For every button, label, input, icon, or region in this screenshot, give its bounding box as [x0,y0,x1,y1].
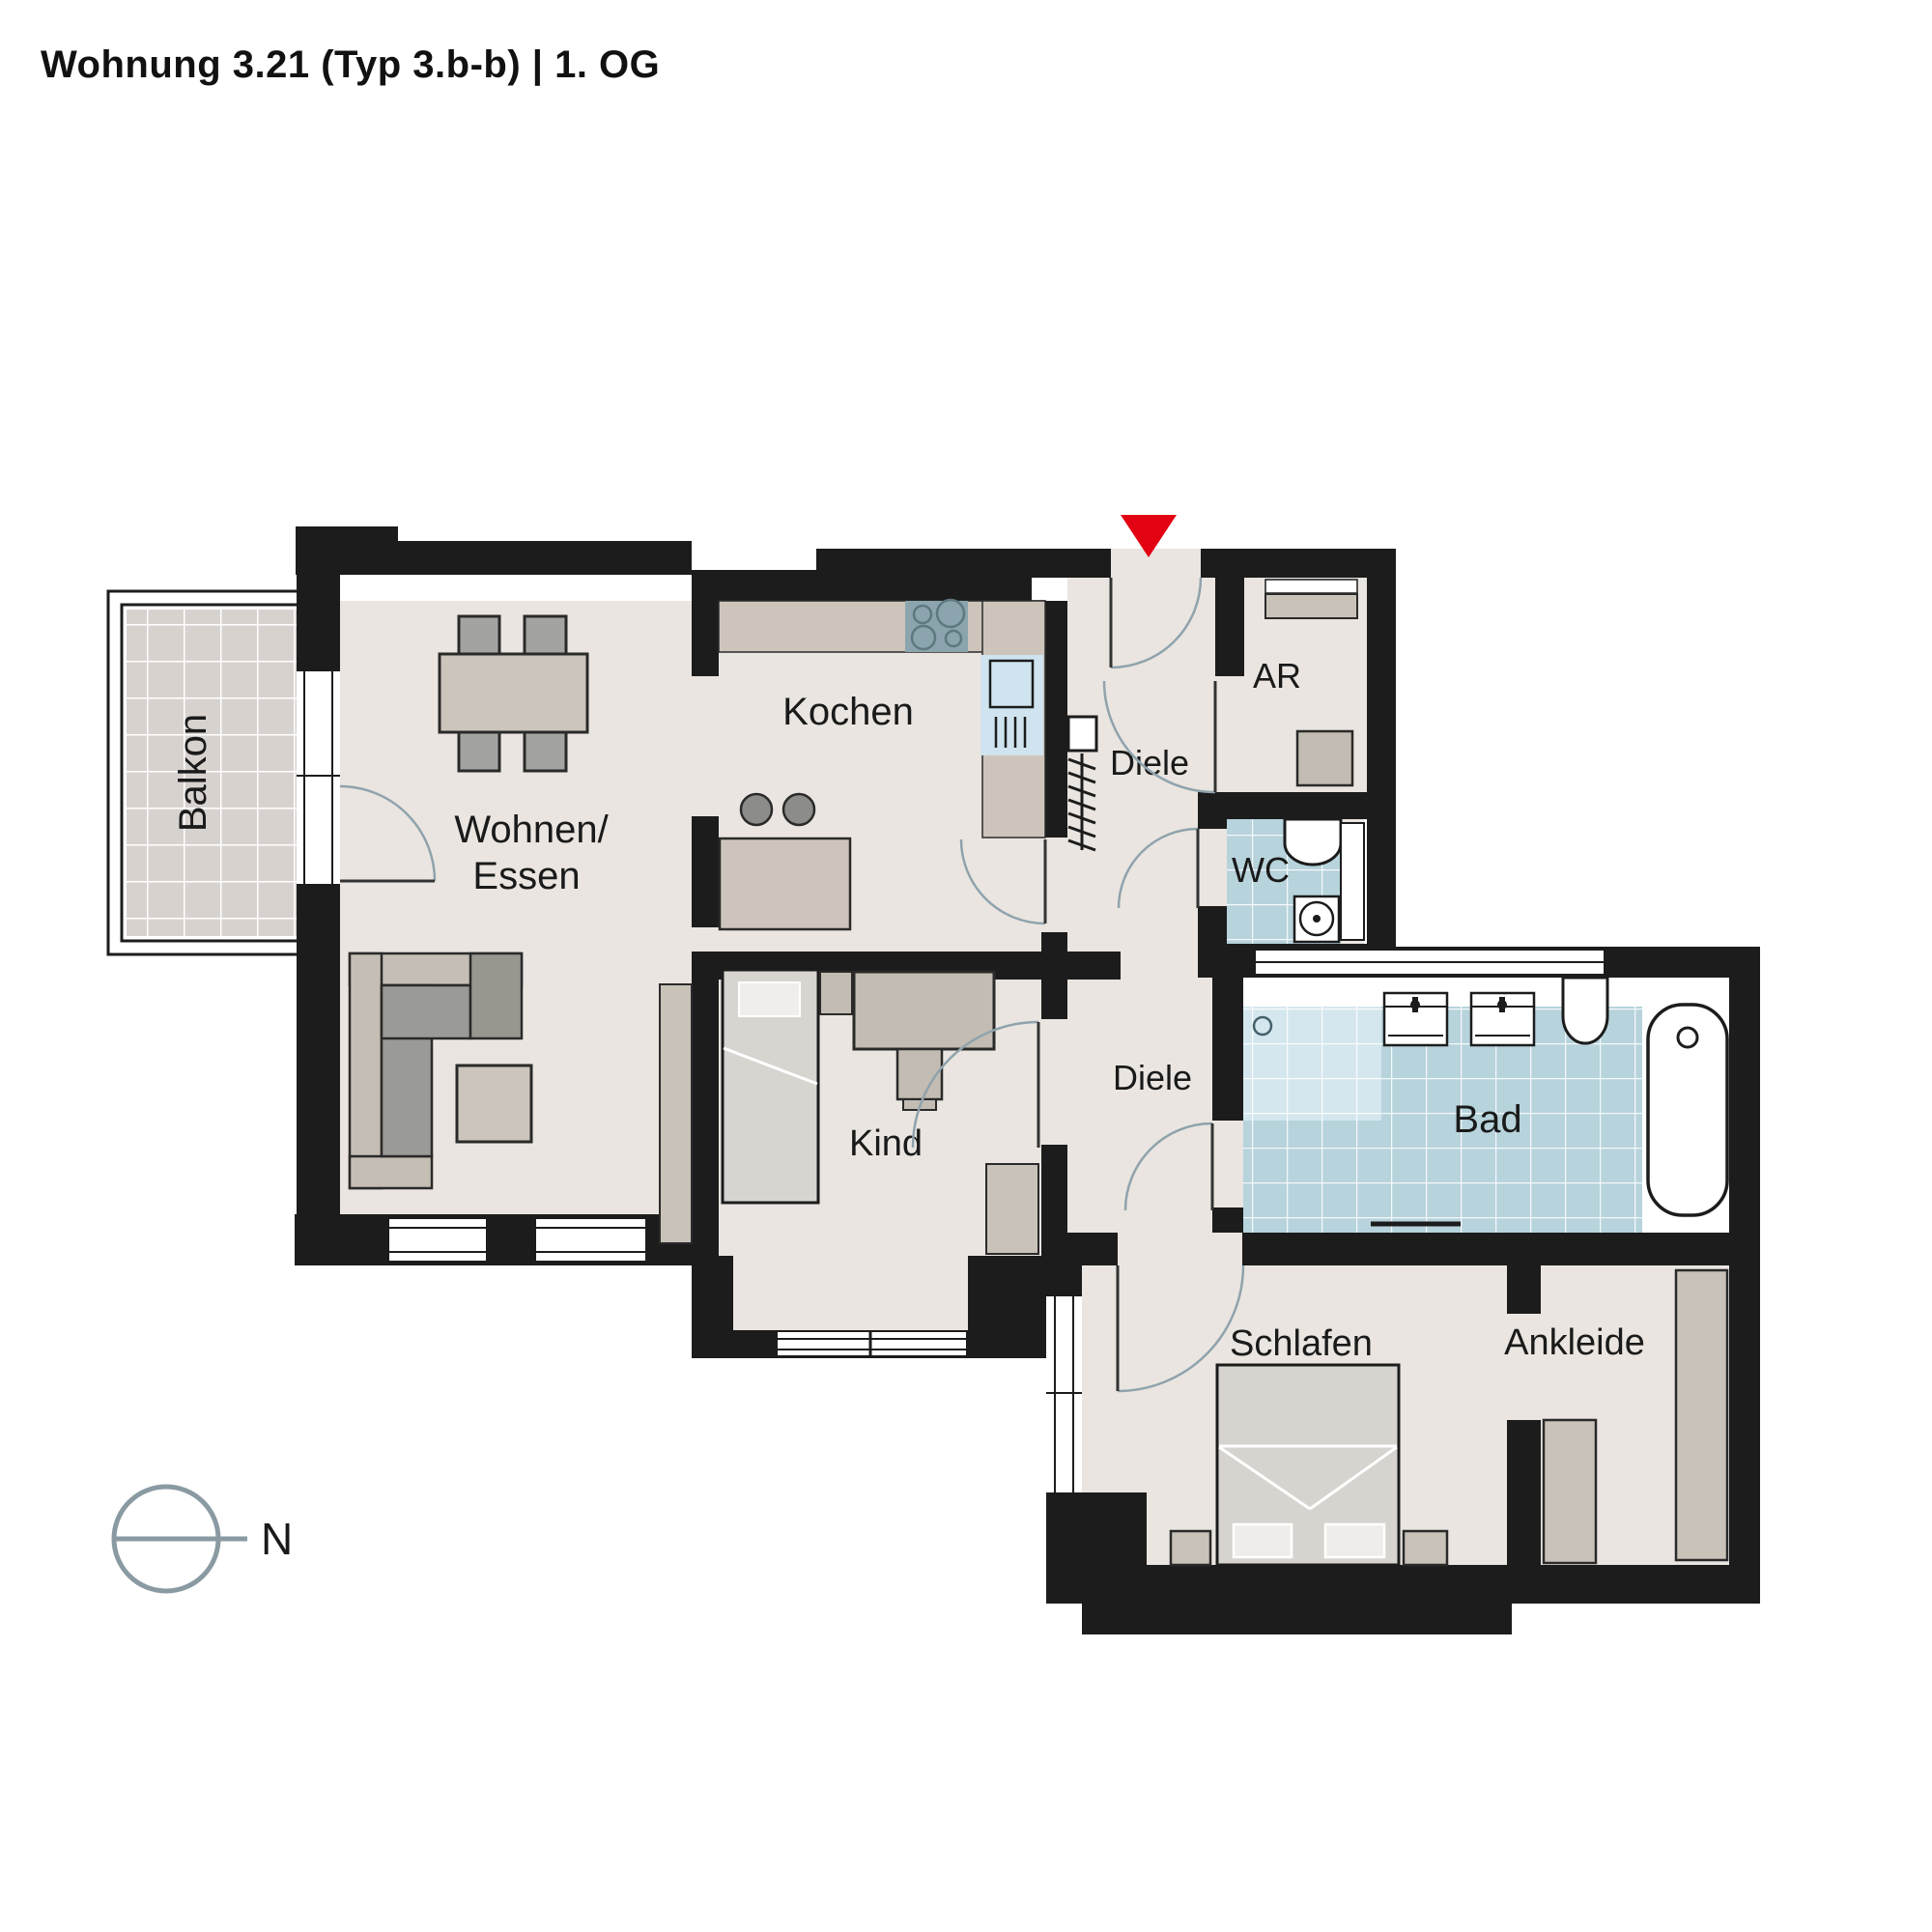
room-label-wc: WC [1232,850,1290,890]
room-label-bad: Bad [1453,1098,1521,1141]
svg-text:Wohnen/: Wohnen/ [454,809,609,851]
wardrobe [1676,1270,1727,1560]
room-label-schlafen: Schlafen [1230,1323,1373,1364]
toilet-icon [1285,819,1341,865]
balcony: Balkon [108,591,298,954]
toilet-icon [1563,978,1607,1043]
room-label-balkon: Balkon [172,714,214,832]
bath-sink-icon [1384,993,1447,1045]
kitchen-sink-icon [980,655,1043,755]
floorplan-page: Wohnung 3.21 (Typ 3.b-b) | 1. OG Balkon [0,0,1932,1932]
kid-side-cabinet [820,972,852,1014]
svg-text:Essen: Essen [472,855,580,897]
compass-label: N [261,1514,293,1564]
room-label-diele-upper: Diele [1110,743,1189,782]
bar-stool [741,794,772,825]
room-label-kind: Kind [849,1123,923,1164]
north-compass-icon: N [114,1487,293,1591]
coffee-table [457,1065,531,1142]
wohnen-sideboard [660,984,692,1243]
kid-bed [723,970,818,1203]
bathtub-icon [1648,1005,1727,1215]
room-label-diele-lower: Diele [1113,1058,1192,1097]
bar-stool [783,794,814,825]
cooktop-icon [905,600,968,652]
room-label-kochen: Kochen [782,691,914,733]
bath-sink-icon [1471,993,1534,1045]
wardrobe [1544,1420,1596,1563]
floorplan-canvas: Wohnung 3.21 (Typ 3.b-b) | 1. OG Balkon [0,0,1932,1932]
room-label-ankleide: Ankleide [1504,1322,1645,1363]
double-bed [1217,1365,1399,1565]
kitchen-island [720,838,850,929]
utility-box [1068,717,1096,751]
wc-sink-icon [1294,896,1339,942]
kid-chair [897,1049,942,1110]
page-title: Wohnung 3.21 (Typ 3.b-b) | 1. OG [41,43,660,86]
wc-cabinet [1341,823,1364,940]
room-label-ar: AR [1253,656,1301,696]
kid-desk [854,972,994,1049]
nightstand [1171,1531,1210,1565]
nightstand [1404,1531,1447,1565]
kid-wardrobe [986,1164,1038,1254]
